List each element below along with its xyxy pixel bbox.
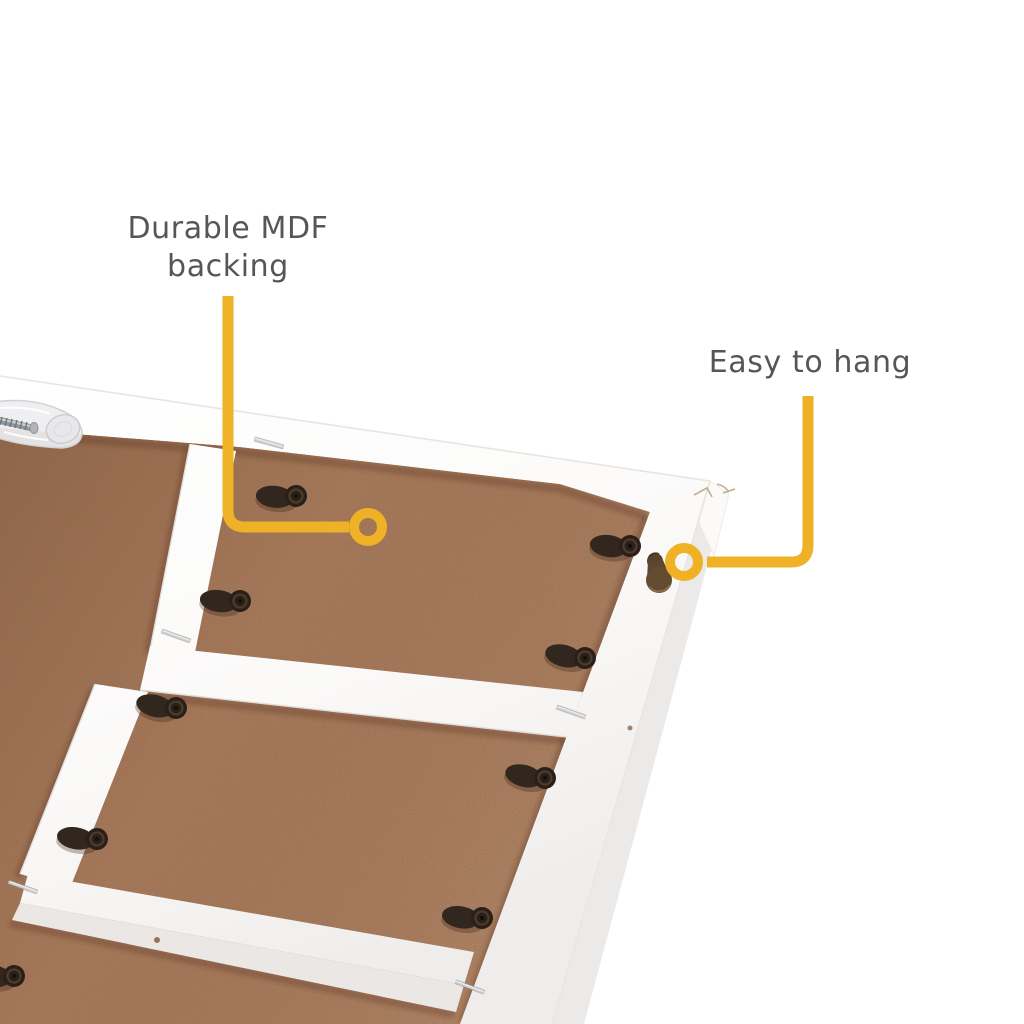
- rail-chip-mark: [628, 726, 633, 731]
- callout-label-line2: backing: [167, 249, 289, 284]
- screw-head: [30, 423, 38, 434]
- product-annotation-image: Durable MDF backing Easy to hang: [0, 0, 1024, 1024]
- frame-back-photo: Durable MDF backing Easy to hang: [0, 0, 1024, 1024]
- wood-chip-mark: [154, 937, 160, 943]
- callout-label-line1: Durable MDF: [127, 211, 328, 246]
- callout-label: Easy to hang: [709, 345, 912, 380]
